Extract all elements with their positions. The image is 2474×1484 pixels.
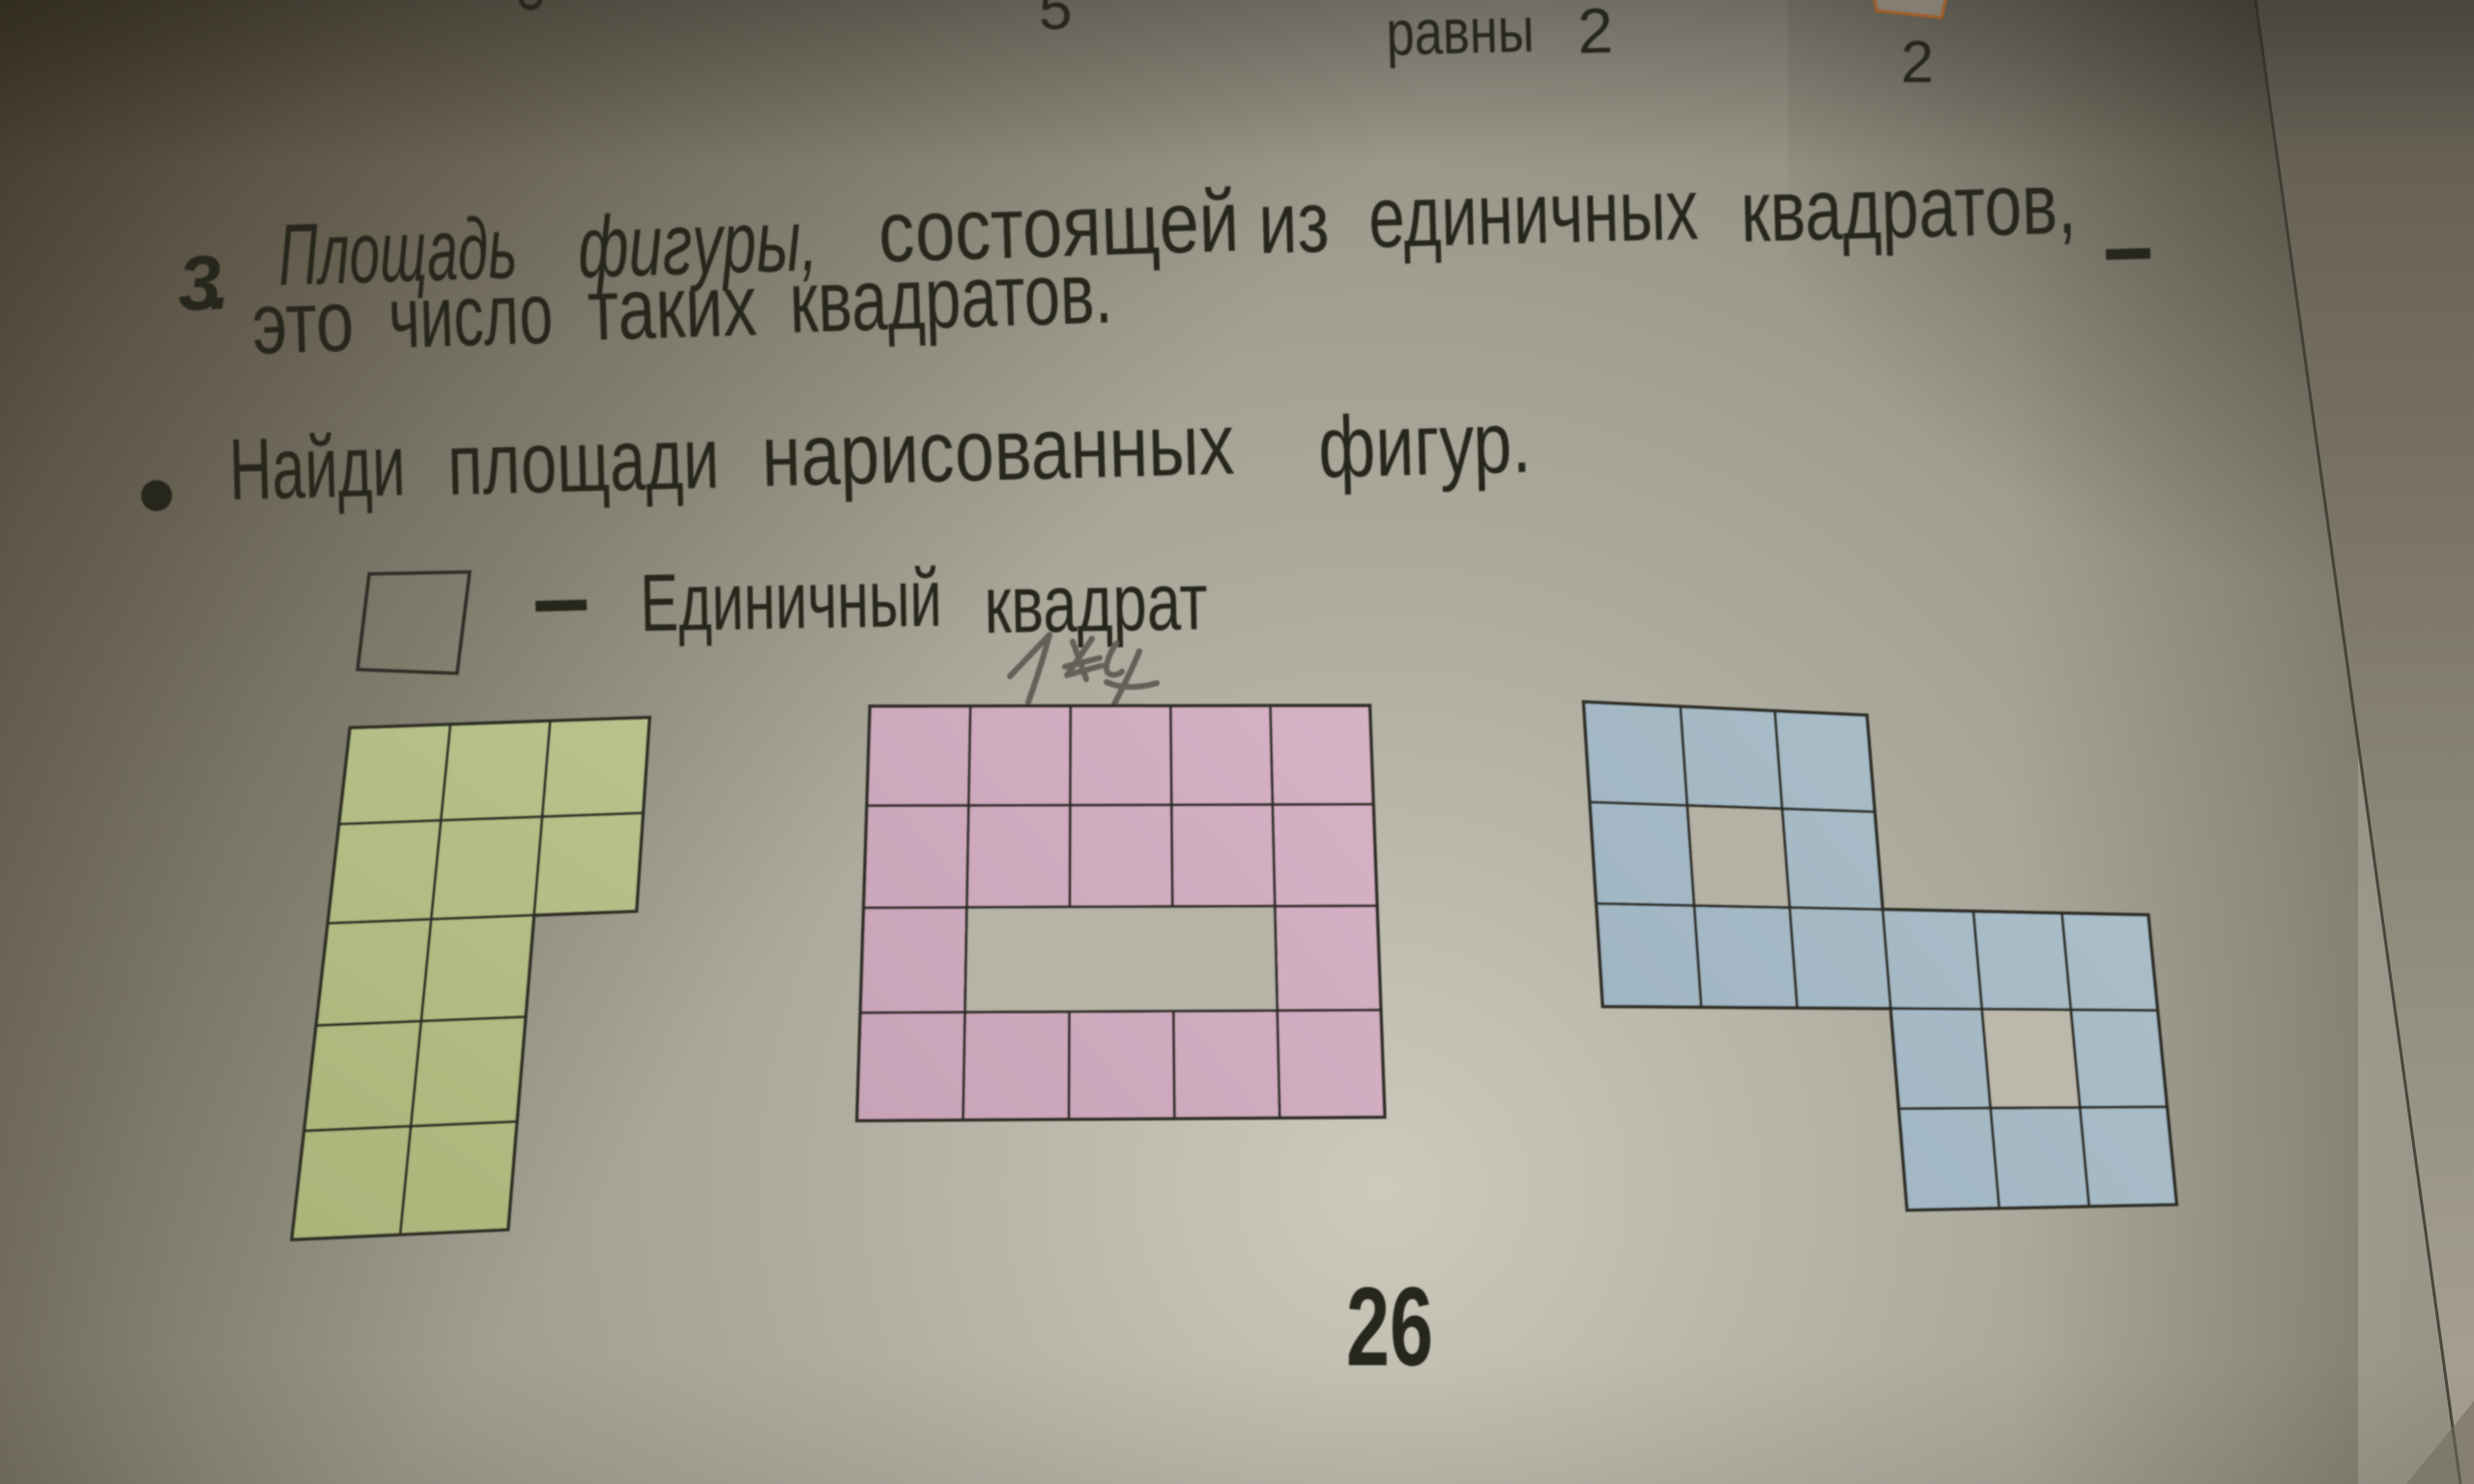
svg-text:число: число bbox=[387, 266, 554, 367]
svg-text:это: это bbox=[250, 273, 355, 373]
svg-text:нарисованных: нарисованных bbox=[761, 396, 1235, 505]
svg-text:2: 2 bbox=[1576, 0, 1614, 67]
svg-text:5: 5 bbox=[1039, 0, 1072, 43]
svg-text:Единичный: Единичный bbox=[640, 553, 943, 648]
svg-text:квадратов,: квадратов, bbox=[1740, 156, 2077, 261]
svg-text:квадратов.: квадратов. bbox=[788, 245, 1113, 352]
svg-text:из: из bbox=[1257, 174, 1331, 272]
svg-text:3.: 3. bbox=[177, 240, 231, 327]
svg-text:Найди: Найди bbox=[228, 417, 407, 519]
svg-text:фигур.: фигур. bbox=[1317, 394, 1533, 497]
svg-text:26: 26 bbox=[1346, 1264, 1433, 1389]
svg-text:квадрат: квадрат bbox=[984, 556, 1209, 650]
svg-text:2: 2 bbox=[1901, 29, 1934, 95]
svg-text:таких: таких bbox=[586, 258, 758, 359]
svg-text:равны: равны bbox=[1385, 0, 1535, 69]
svg-text:единичных: единичных bbox=[1367, 161, 1700, 267]
svg-text:площади: площади bbox=[446, 411, 721, 514]
